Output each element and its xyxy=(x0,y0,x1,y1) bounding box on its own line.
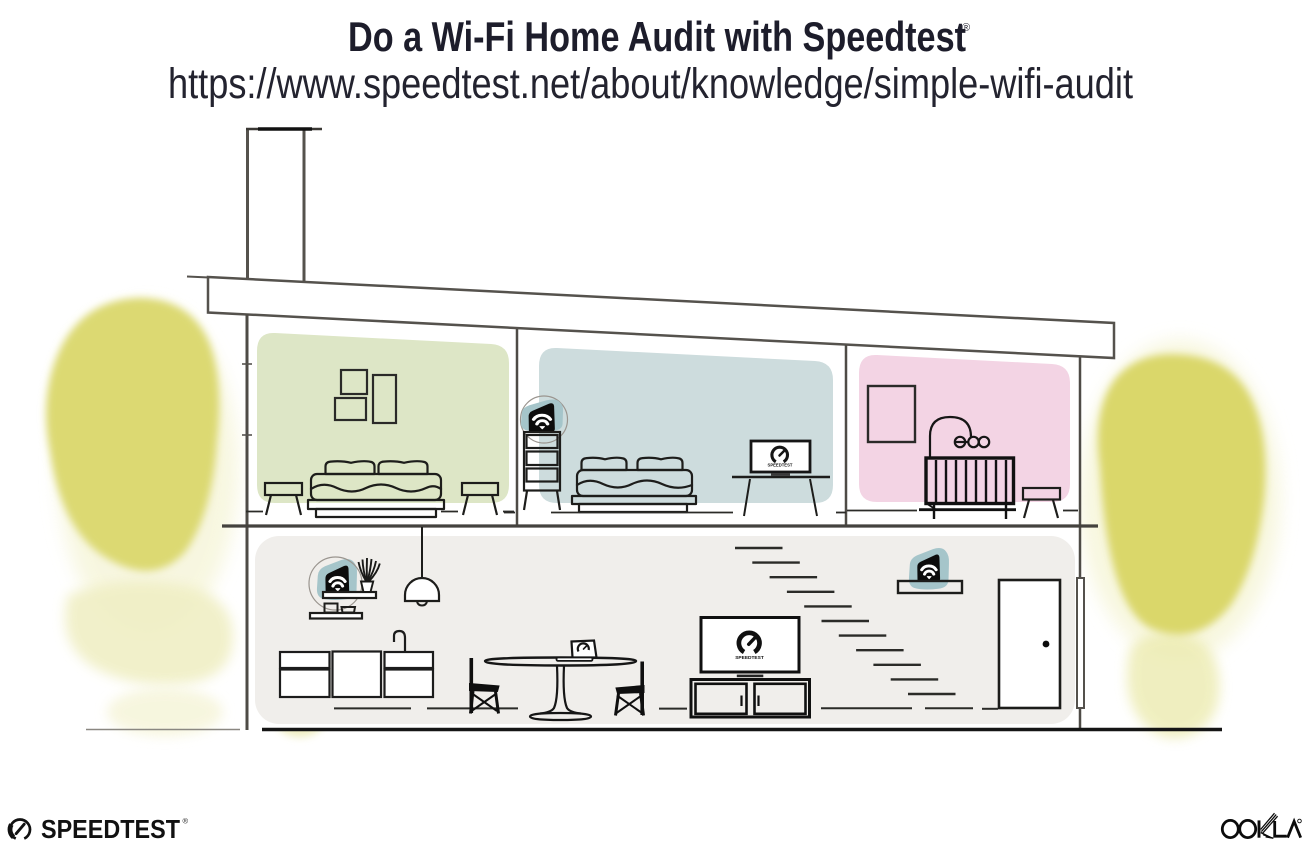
svg-text:®: ® xyxy=(962,22,970,34)
svg-text:SPEEDTEST: SPEEDTEST xyxy=(41,816,180,844)
svg-text:SPEEDTEST: SPEEDTEST xyxy=(735,655,764,661)
svg-text:Do a Wi-Fi Home Audit with Spe: Do a Wi-Fi Home Audit with Speedtest xyxy=(348,13,966,60)
svg-text:SPEEDTEST: SPEEDTEST xyxy=(768,463,793,468)
svg-text:®: ® xyxy=(183,817,189,826)
svg-text:https://www.speedtest.net/abou: https://www.speedtest.net/about/knowledg… xyxy=(168,60,1133,108)
